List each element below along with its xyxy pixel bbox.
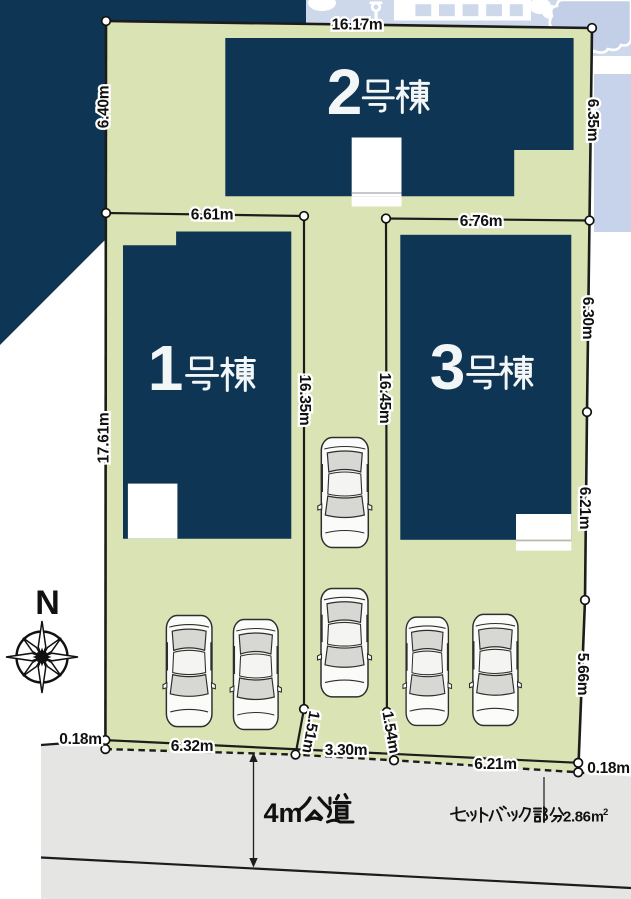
svg-text:17.61m: 17.61m — [96, 413, 113, 464]
svg-text:4m: 4m — [263, 798, 302, 828]
svg-text:6.21m: 6.21m — [474, 756, 516, 773]
svg-text:6.35m: 6.35m — [584, 99, 601, 141]
svg-text:1: 1 — [148, 332, 184, 404]
svg-text:16.17m: 16.17m — [332, 17, 383, 34]
svg-text:6.32m: 6.32m — [171, 738, 213, 755]
svg-text:0.18m: 0.18m — [59, 731, 101, 748]
svg-text:2.86: 2.86 — [563, 809, 591, 826]
svg-text:6.21m: 6.21m — [576, 487, 593, 529]
svg-text:6.30m: 6.30m — [579, 297, 596, 339]
svg-text:m: m — [591, 810, 604, 826]
svg-text:2: 2 — [327, 56, 363, 128]
svg-text:N: N — [35, 584, 60, 622]
svg-text:5.66m: 5.66m — [574, 653, 591, 695]
svg-text:6.40m: 6.40m — [96, 86, 113, 128]
svg-text:6.76m: 6.76m — [460, 213, 502, 230]
svg-text:0.18m: 0.18m — [587, 760, 629, 777]
svg-text:6.61m: 6.61m — [191, 207, 233, 224]
svg-text:3.30m: 3.30m — [325, 742, 367, 759]
svg-text:2: 2 — [603, 807, 608, 818]
svg-text:3: 3 — [430, 331, 466, 403]
svg-text:16.35m: 16.35m — [296, 375, 313, 426]
svg-text:16.45m: 16.45m — [376, 373, 393, 424]
